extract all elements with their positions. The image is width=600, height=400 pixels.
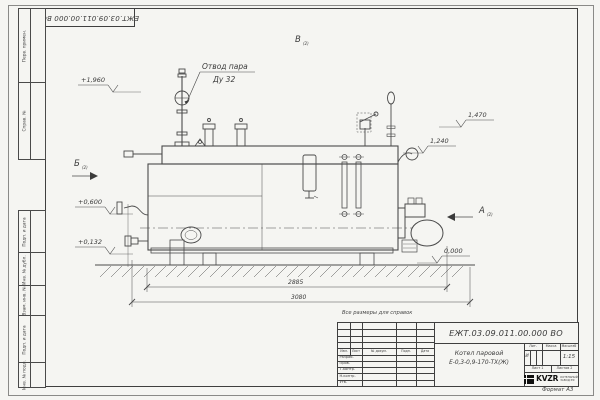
elevation-marks — [75, 85, 494, 263]
col-header-doc: № докум. — [362, 348, 396, 354]
manhole — [181, 227, 201, 243]
cell-divider — [30, 211, 31, 253]
side-cell-label: Инв. № дубл. — [23, 255, 28, 284]
row-utv: Утв. — [338, 380, 364, 386]
view-label-a: А — [478, 206, 485, 216]
scale-header: Масштаб — [560, 343, 578, 350]
side-cell-label: Перв. примен. — [23, 30, 28, 62]
separator-cylinder — [303, 155, 318, 198]
sheet-number: Лист 1 — [524, 365, 551, 372]
elevation-rear-mid-label: 1,240 — [430, 137, 449, 145]
reference-note: Все размеры для справок — [342, 310, 412, 316]
view-label-a-ref: (2) — [487, 212, 493, 217]
mass-header: Масса — [542, 343, 560, 350]
burner — [398, 198, 443, 252]
title-block-line — [338, 336, 434, 337]
boiler-drawing: Отвод пара Ду 32 +1,960 +0,600 +0,132 1,… — [45, 14, 577, 322]
title-block-line — [536, 350, 537, 365]
frame-side-cell-inv-dubl: Инв. № дубл. — [18, 252, 46, 287]
top-nozzles — [203, 119, 247, 147]
col-header-data: Дата — [416, 348, 434, 354]
title-block-line — [338, 329, 434, 330]
cell-divider — [30, 83, 31, 159]
frame-side-cell-podp-data-2: Подп. и дата — [18, 315, 46, 364]
cell-divider — [30, 9, 31, 83]
callout-steam-line1: Отвод пара — [202, 62, 248, 71]
doc-number: ЕЖТ.03.09.011.00.000 ВО — [434, 323, 578, 343]
title-block-line — [530, 350, 531, 365]
lit-header: Лит. — [524, 343, 542, 350]
elevation-ground-label: 0,000 — [444, 247, 463, 255]
cell-divider — [30, 363, 31, 387]
elevation-front-upper-label: +0,600 — [78, 198, 102, 206]
safety-valve — [357, 92, 395, 146]
view-label-v-ref: (2) — [303, 41, 309, 46]
title-block-line — [338, 342, 434, 343]
scale-value: 1:15 — [560, 350, 578, 365]
side-cell-label: Подп. и дата — [23, 217, 28, 246]
elevation-top-label: +1,960 — [81, 76, 105, 84]
kvzr-logo-text: KVZR — [536, 375, 558, 383]
frame-side-cell-podp-data-1: Подп. и дата — [18, 210, 46, 254]
lit-value: И — [524, 350, 530, 365]
cell-divider — [30, 253, 31, 286]
title-block: Изм. Лист № докум. Подп. Дата Разраб. Пр… — [337, 322, 579, 387]
side-cell-label: Инв. № подл. — [23, 360, 28, 390]
cell-divider — [30, 316, 31, 363]
lifting-lug — [195, 139, 205, 146]
frame-side-cell-vzam-inv: Взам. инв. № — [18, 285, 46, 317]
frame-side-cell-inv-podl: Инв. № подл. — [18, 362, 46, 388]
sheets-total: Листов 2 — [551, 365, 578, 372]
boiler-body — [140, 146, 413, 265]
view-label-v: В — [295, 35, 301, 45]
format-label: Формат А3 — [542, 387, 573, 393]
drawing-sheet: ЕЖТ.03.09.011.00.000 ВО Перв. примен. Сп… — [0, 0, 600, 400]
dimension-overall-label: 3080 — [291, 294, 306, 301]
side-cell-label: Подп. и дата — [23, 325, 28, 354]
elevation-front-lower-label: +0,132 — [78, 238, 102, 246]
pressure-gauge — [398, 148, 418, 162]
kvzr-logo-icon — [524, 375, 534, 384]
org-cell: KVZR КОТЕЛЬНЫЙ ЗАВОД РФ — [524, 372, 578, 386]
ground-hatching — [95, 265, 475, 277]
steam-outlet-valve — [175, 69, 189, 146]
side-cell-label: Взам. инв. № — [23, 286, 28, 315]
frame-side-cell-sprav: Справ. № — [18, 82, 46, 160]
elevation-rear-upper-label: 1,470 — [468, 111, 487, 119]
view-arrows — [72, 172, 473, 221]
org-name-line2: ЗАВОД РФ — [560, 379, 578, 382]
view-label-b-ref: (2) — [82, 165, 88, 170]
side-cell-label: Справ. № — [23, 111, 28, 132]
dimension-inner-label: 2885 — [288, 279, 303, 286]
cell-divider — [30, 286, 31, 316]
col-header-podp: Подп. — [396, 348, 416, 354]
view-label-b: Б — [74, 159, 80, 169]
product-name-line2: Е-0,3-0,9-170-ТХ(Ж) — [434, 355, 524, 373]
callout-steam-line2: Ду 32 — [212, 75, 235, 84]
frame-side-cell-perv-primen: Перв. примен. — [18, 8, 46, 84]
